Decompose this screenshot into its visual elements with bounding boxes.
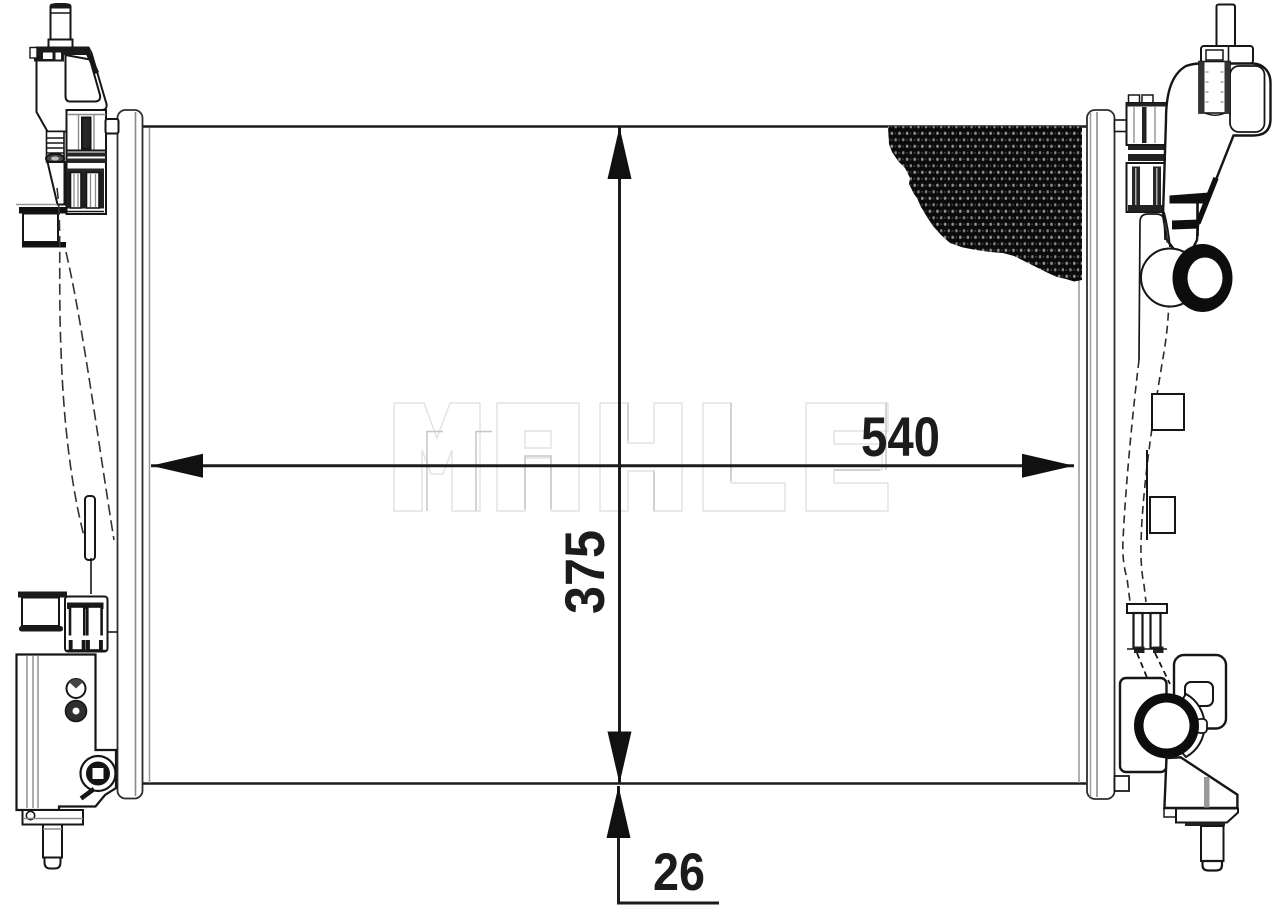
svg-text:540: 540 [861, 405, 940, 468]
svg-text:26: 26 [653, 843, 705, 902]
svg-text:375: 375 [553, 530, 616, 614]
